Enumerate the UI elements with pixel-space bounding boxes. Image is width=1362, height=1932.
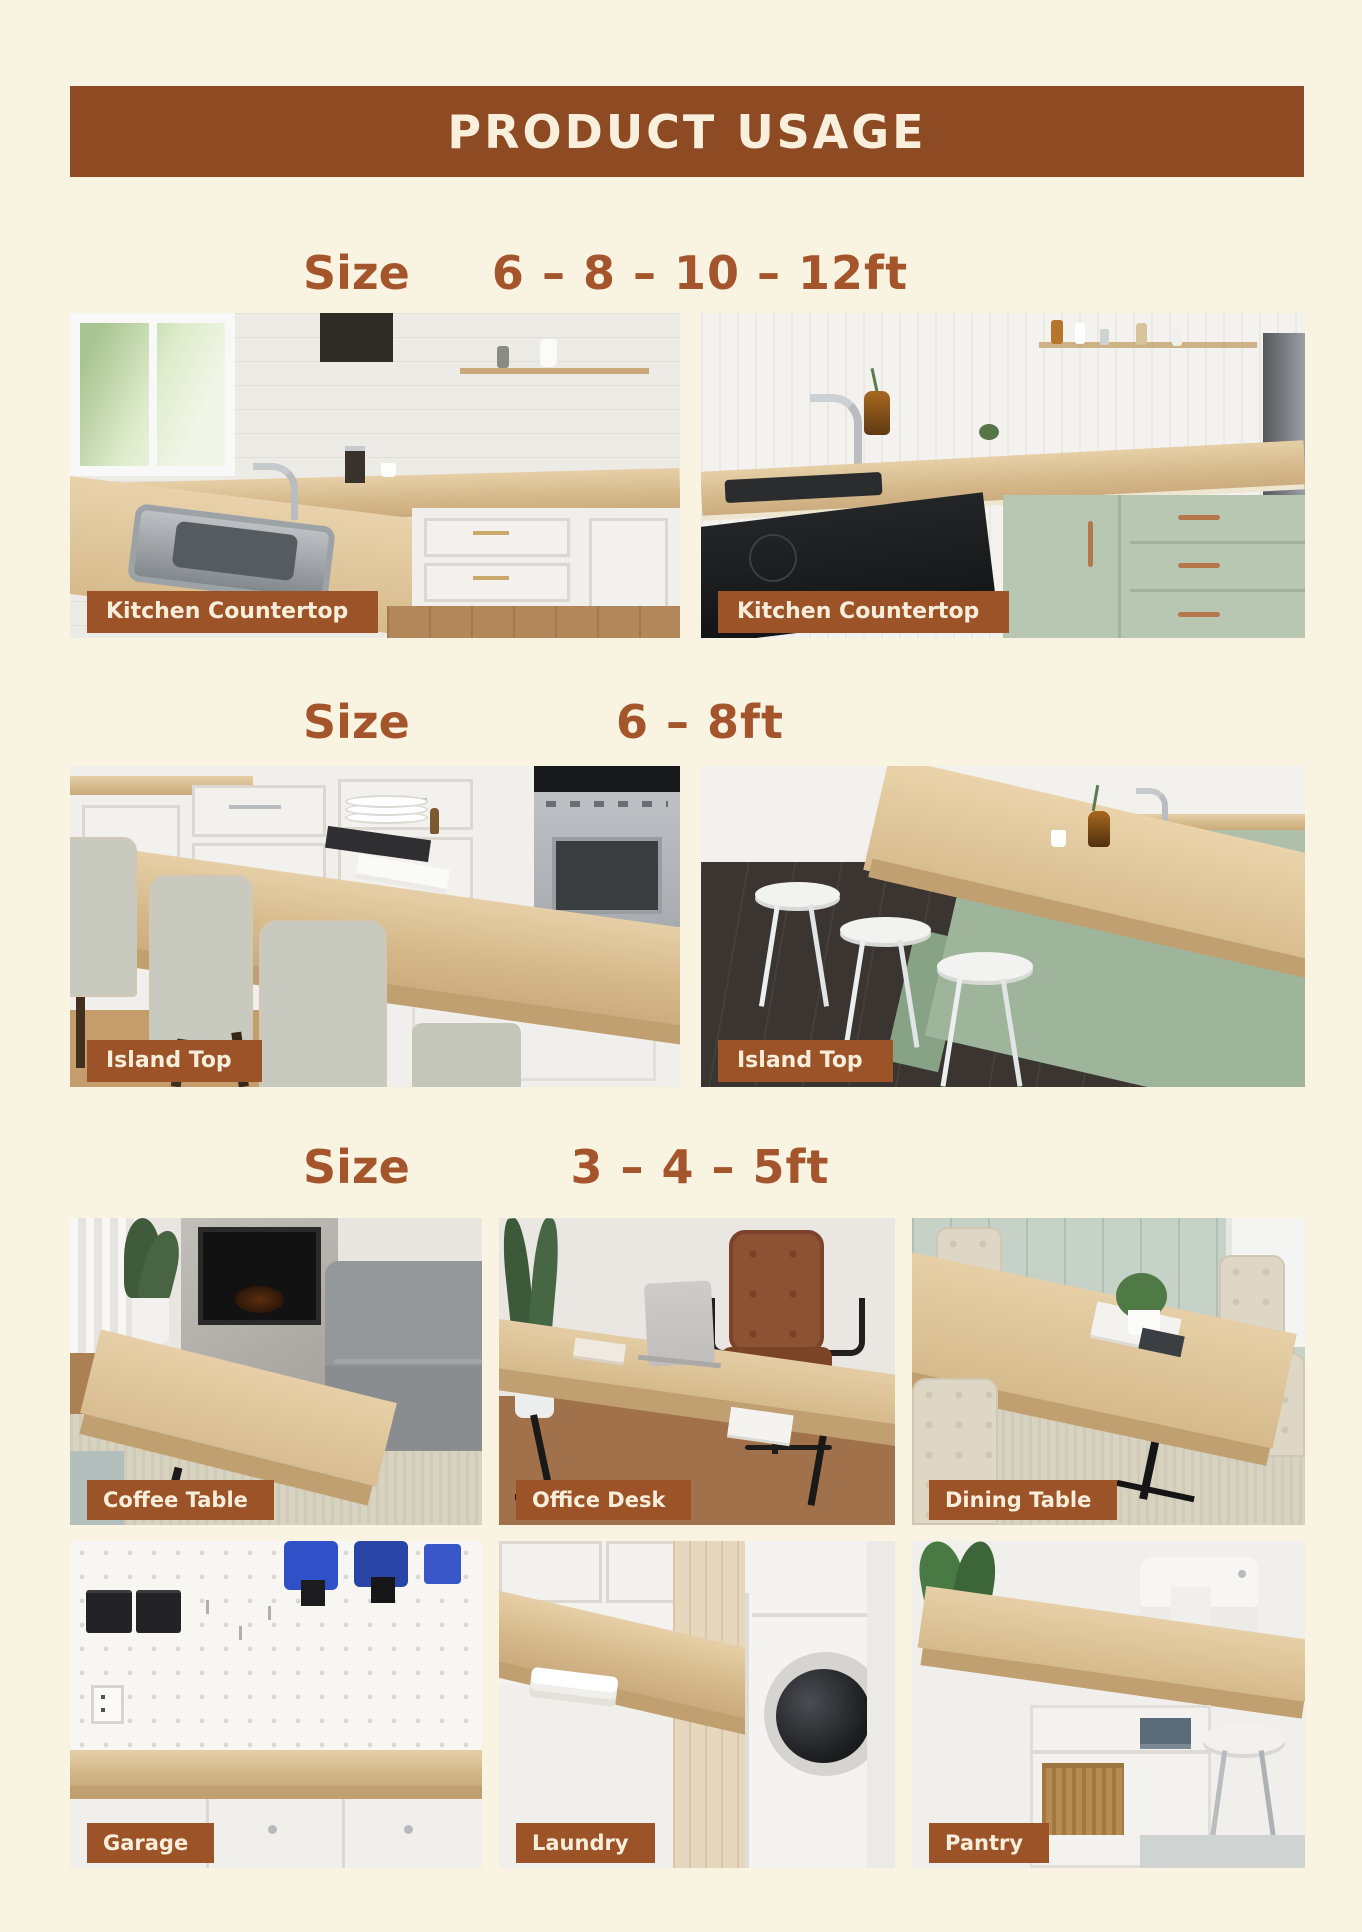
washer-door-glass: [776, 1669, 871, 1764]
drawer-divider-2: [342, 1799, 345, 1868]
image-caption: Garage: [87, 1823, 214, 1863]
hook-1: [206, 1600, 209, 1614]
small-vase: [1172, 329, 1182, 346]
jar: [1136, 323, 1147, 345]
image-caption: Laundry: [516, 1823, 655, 1863]
photo-laundry: Laundry: [499, 1541, 895, 1868]
green-cabinets: [1003, 495, 1305, 638]
photo-garage: Garage: [70, 1541, 482, 1868]
garage-scene: [70, 1541, 482, 1868]
amber-vase: [864, 391, 890, 435]
french-press: [345, 446, 365, 483]
size-value: 6 – 8 – 10 – 12ft: [380, 246, 1020, 300]
shelf-vase: [540, 339, 557, 367]
white-kitchen-scene: [70, 313, 680, 638]
image-caption: Coffee Table: [87, 1480, 274, 1520]
laptop: [643, 1281, 715, 1367]
open-shelf: [1039, 342, 1256, 348]
stool-seat-2: [840, 917, 931, 943]
image-caption: Office Desk: [516, 1480, 691, 1520]
size-line-2: Size 6 – 8ft: [70, 695, 1304, 753]
image-caption: Island Top: [87, 1040, 262, 1082]
gas-cooktop: [534, 766, 680, 792]
glass-jar: [1100, 329, 1109, 345]
dryer-edge: [867, 1541, 895, 1868]
outlet: [91, 1685, 124, 1724]
size-value: 6 – 8ft: [380, 695, 1020, 749]
drawer-2: [424, 563, 570, 602]
drawer-1: [424, 518, 570, 557]
wicker-basket: [1042, 1763, 1125, 1835]
oven-window: [552, 837, 662, 914]
range-knobs: [546, 801, 668, 807]
copper-door-handle: [1088, 521, 1093, 567]
workbench-edge: [70, 1786, 482, 1799]
photo-office-desk: Office Desk: [499, 1218, 895, 1525]
image-caption: Kitchen Countertop: [87, 591, 378, 633]
green-kitchen-scene: [701, 313, 1305, 638]
drill-handle-2: [371, 1577, 396, 1603]
amber-bottle: [1051, 320, 1063, 344]
chair-3-seat: [412, 1023, 522, 1087]
copper-drawer-handle-3: [1178, 612, 1220, 617]
black-bin-1: [86, 1590, 131, 1633]
photo-dining-table: Dining Table: [912, 1218, 1305, 1525]
photo-pantry: Pantry: [912, 1541, 1305, 1868]
faucet: [810, 394, 862, 464]
window-mullion: [149, 313, 157, 476]
shelf-jar: [497, 346, 509, 368]
ember-glow: [235, 1286, 284, 1314]
title-banner: PRODUCT USAGE: [70, 86, 1304, 177]
silver-handle-1: [229, 805, 281, 809]
white-cup: [1051, 830, 1066, 847]
bar-chair-1: [70, 837, 137, 998]
size-value: 3 – 4 – 5ft: [380, 1140, 1020, 1194]
chair-arm-right: [824, 1298, 866, 1356]
stool-seat: [1203, 1724, 1286, 1753]
cabinet-door: [589, 518, 668, 616]
outlet-dot-2: [101, 1708, 105, 1712]
white-island-scene: [70, 766, 680, 1087]
black-bin-2: [136, 1590, 181, 1633]
cabinet-divider: [1118, 495, 1121, 638]
bar-chair-3: [259, 920, 387, 1087]
floating-shelf: [460, 368, 649, 374]
range-hood: [320, 313, 393, 362]
pantry-scene: [912, 1541, 1305, 1868]
page-title: PRODUCT USAGE: [447, 105, 926, 159]
white-planter: [132, 1298, 169, 1344]
plate-1: [345, 795, 428, 808]
drawer-line-1: [1130, 541, 1305, 544]
pegboard-wall: [70, 1541, 482, 1750]
drill-handle-1: [301, 1580, 326, 1606]
size-line-3: Size 3 – 4 – 5ft: [70, 1140, 1304, 1198]
counter-plant: [979, 424, 999, 440]
upper-drawer-1: [192, 785, 326, 836]
bar-chair-2: [149, 875, 253, 1042]
green-island-scene: [701, 766, 1305, 1087]
wood-floor: [387, 606, 680, 639]
stool-seat-1: [755, 882, 840, 908]
product-usage-infographic: PRODUCT USAGE Size 6 – 8 – 10 – 12ft: [0, 0, 1362, 1932]
drawer-line-2: [1130, 589, 1305, 592]
sofa-cushion-line: [334, 1359, 482, 1364]
living-room-scene: [70, 1218, 482, 1525]
laundry-scene: [499, 1541, 895, 1868]
white-bottle: [1075, 323, 1085, 344]
amber-vase: [1088, 811, 1110, 847]
outlet-dot-1: [101, 1695, 105, 1699]
chair-leg-1: [76, 997, 85, 1068]
copper-drawer-handle-1: [1178, 515, 1220, 520]
photo-kitchen-countertop-1: Kitchen Countertop: [70, 313, 680, 638]
shelf-line: [1030, 1750, 1211, 1754]
photo-island-top-2: Island Top: [701, 766, 1305, 1087]
blue-tool: [424, 1544, 461, 1583]
folded-textiles: [1140, 1718, 1191, 1744]
photo-coffee-table: Coffee Table: [70, 1218, 482, 1525]
copper-drawer-handle-2: [1178, 563, 1220, 568]
stool-seat-3: [937, 952, 1034, 981]
drawer-handle-2: [473, 576, 509, 580]
size-line-1: Size 6 – 8 – 10 – 12ft: [70, 246, 1304, 304]
workbench-top: [70, 1750, 482, 1786]
hook-2: [239, 1626, 242, 1640]
dining-room-scene: [912, 1218, 1305, 1525]
image-caption: Pantry: [929, 1823, 1049, 1863]
mug: [381, 463, 396, 477]
photo-kitchen-countertop-2: Kitchen Countertop: [701, 313, 1305, 638]
photo-island-top-1: Island Top: [70, 766, 680, 1087]
hook-3: [268, 1606, 271, 1620]
faucet: [253, 463, 298, 520]
image-caption: Island Top: [718, 1040, 893, 1082]
image-caption: Kitchen Countertop: [718, 591, 1009, 633]
image-caption: Dining Table: [929, 1480, 1117, 1520]
drawer-handle-1: [473, 531, 509, 535]
rug: [1140, 1835, 1305, 1868]
pepper-grinder: [430, 808, 439, 834]
office-scene: [499, 1218, 895, 1525]
